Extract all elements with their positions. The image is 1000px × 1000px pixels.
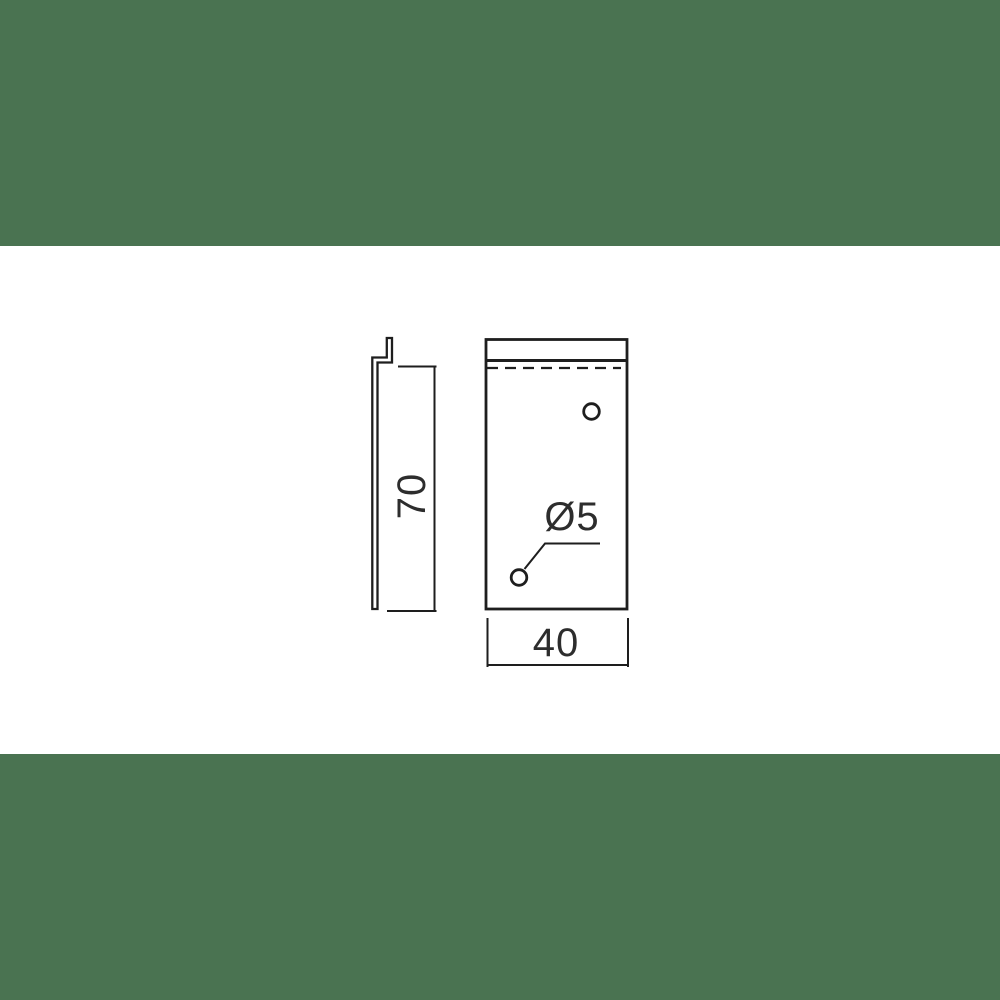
- front-view-plate: [486, 340, 627, 610]
- height-dimension-label: 70: [390, 473, 434, 520]
- hole-diameter-leader: [525, 544, 601, 570]
- drawing-labels: 70 Ø5 40: [390, 473, 600, 665]
- hole-bottom-left: [511, 570, 527, 586]
- hole-top-right: [584, 404, 600, 420]
- technical-drawing: 70 Ø5 40: [0, 0, 1000, 1000]
- width-dimension-label: 40: [533, 621, 580, 665]
- drawing-page: 70 Ø5 40: [0, 0, 1000, 1000]
- hole-diameter-label: Ø5: [544, 495, 599, 539]
